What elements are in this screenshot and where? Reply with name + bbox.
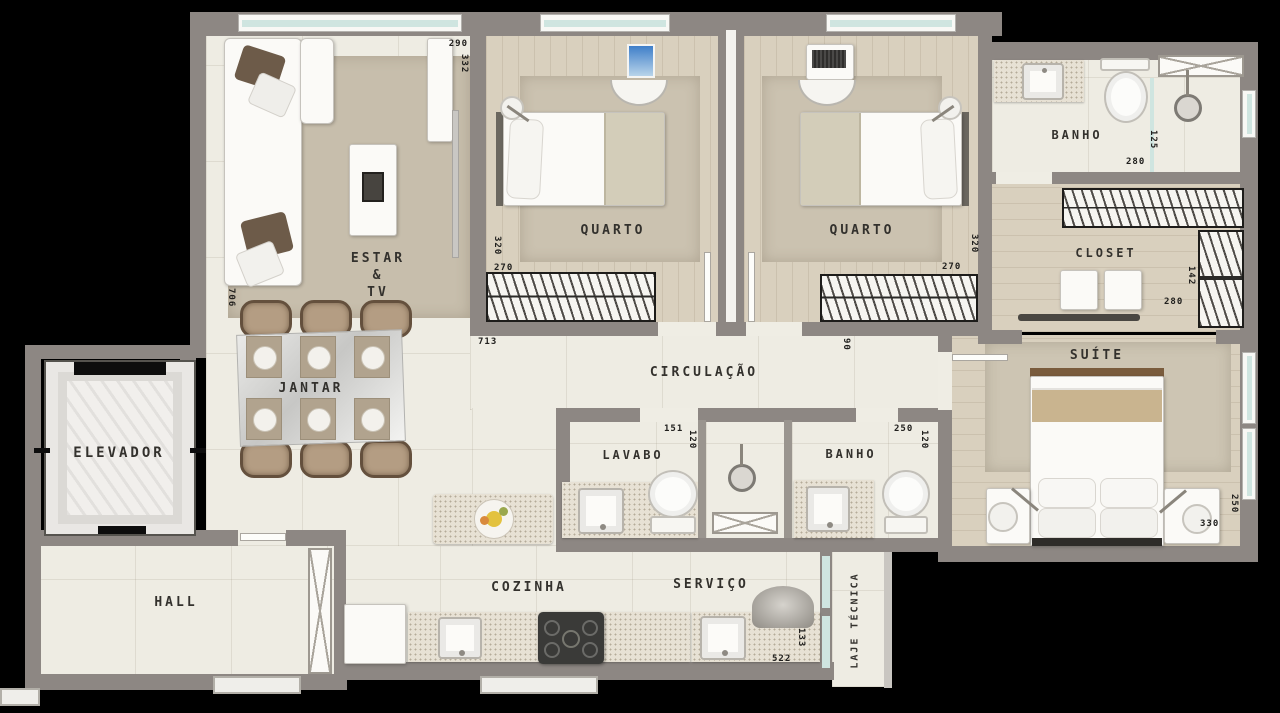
door-frame <box>480 676 598 694</box>
window-glass <box>1247 432 1252 496</box>
bed-pillow <box>1100 508 1158 538</box>
wardrobe-closet-top <box>1062 188 1244 228</box>
vent <box>822 556 830 608</box>
dim-quarto1-width: 270 <box>494 263 513 273</box>
elevator-mark <box>98 526 146 534</box>
placemat <box>354 398 390 440</box>
dim-banho-suite-width: 280 <box>1126 157 1145 167</box>
tall-cabinet <box>308 548 332 674</box>
door-leaf-quarto1 <box>704 252 711 322</box>
dim-lavabo-width: 151 <box>664 424 683 434</box>
burner <box>544 620 560 636</box>
plate <box>253 346 277 370</box>
elevator-door <box>74 362 166 375</box>
closet-stool <box>1060 270 1098 310</box>
toilet-tank <box>650 516 696 534</box>
room-label-elevador: ELEVADOR <box>59 445 179 462</box>
placemat <box>300 336 336 378</box>
faucet <box>827 522 833 528</box>
kitchen-sink <box>438 617 482 659</box>
dining-chair <box>300 440 352 478</box>
wall-glass-partition <box>784 420 792 538</box>
burner <box>582 620 598 636</box>
room-label-closet: CLOSET <box>1051 245 1161 262</box>
window-glass <box>1247 94 1252 134</box>
dim-banho-social-width: 250 <box>894 424 913 434</box>
toilet <box>882 470 930 518</box>
dim-quarto1-height: 320 <box>492 236 502 255</box>
shower-arm <box>1186 70 1189 96</box>
sofa-chaise <box>300 38 334 124</box>
faucet <box>722 650 728 656</box>
wardrobe-closet-side <box>1198 230 1244 328</box>
dim-quarto2-width: 270 <box>942 262 961 272</box>
wall <box>978 330 1022 344</box>
dim-servico-width: 522 <box>772 654 791 664</box>
wall <box>190 12 206 358</box>
wall <box>470 322 992 336</box>
toilet <box>1104 71 1148 123</box>
bed-pillow <box>1038 478 1096 508</box>
elevator-mark <box>190 448 206 453</box>
wall <box>286 530 346 546</box>
shower-head <box>728 464 756 492</box>
lamp <box>988 502 1018 532</box>
closet-stool <box>1104 270 1142 310</box>
door-opening-lavabo <box>640 408 698 422</box>
laptop <box>812 50 846 68</box>
room-label-hall: HALL <box>126 594 226 611</box>
window <box>1242 90 1256 138</box>
floor-hall <box>39 546 337 676</box>
placemat <box>354 336 390 378</box>
bed-pillow <box>1038 508 1096 538</box>
room-label-circulacao: CIRCULAÇÃO <box>634 364 774 381</box>
plate <box>307 408 331 432</box>
room-label-banho-social: BANHO <box>801 446 901 463</box>
wardrobe-quarto2 <box>820 274 978 322</box>
washer <box>752 586 814 628</box>
door-opening-banho-suite <box>996 172 1052 184</box>
dim-estar-side: 706 <box>226 288 236 307</box>
dim-closet-width: 280 <box>1164 297 1183 307</box>
bed-blanket <box>801 113 861 205</box>
tv-panel <box>452 110 459 258</box>
dim-closet-height: 142 <box>1186 266 1196 285</box>
dim-lavabo-height: 120 <box>687 430 697 449</box>
dim-porta: 90 <box>841 338 851 351</box>
wardrobe-quarto1 <box>486 272 656 322</box>
room-label-line: ESTAR <box>330 250 426 267</box>
window <box>826 14 956 32</box>
window <box>238 14 462 32</box>
room-label-line: & <box>330 267 426 284</box>
door-opening-quarto1 <box>658 322 716 336</box>
burner <box>582 642 598 658</box>
toilet <box>648 470 698 518</box>
bed-headboard <box>962 112 969 206</box>
coffee-table-object <box>362 172 384 202</box>
window <box>1242 428 1256 500</box>
dim-estar-height: 332 <box>459 54 469 73</box>
room-label-estar-tv: ESTAR & TV <box>330 250 426 301</box>
window-glass <box>830 20 952 27</box>
room-label-banho-suite: BANHO <box>1022 127 1132 144</box>
faucet <box>459 650 465 656</box>
shower-glass <box>1150 78 1154 172</box>
bed-pillow <box>1100 478 1158 508</box>
dim-banho-social-height: 120 <box>919 430 929 449</box>
door-frame <box>213 676 301 694</box>
wall-glass-partition <box>698 420 706 538</box>
floor-plan: ESTAR & TV QUARTO QUARTO BANHO CLOSET SU… <box>0 0 1280 713</box>
placemat <box>300 398 336 440</box>
wall <box>1216 330 1258 344</box>
window-glass <box>1247 356 1252 420</box>
bed-blanket <box>604 113 664 205</box>
plate <box>253 408 277 432</box>
elevator-mark <box>34 448 50 453</box>
fruit-plate <box>474 499 514 539</box>
wall <box>556 538 950 552</box>
room-label-jantar: JANTAR <box>261 380 361 397</box>
dim-estar-width: 290 <box>432 39 468 49</box>
dim-banho-suite-height: 125 <box>1148 130 1158 149</box>
fridge <box>344 604 406 664</box>
room-label-suite: SUÍTE <box>1047 347 1147 364</box>
bed-headboard-suite <box>1032 538 1162 546</box>
dim-suite-width: 330 <box>1200 519 1219 529</box>
fruit <box>499 507 508 516</box>
stove <box>538 612 604 664</box>
bed-headboard <box>496 112 503 206</box>
door-leaf-quarto2 <box>748 252 755 322</box>
bed-blanket-suite <box>1032 388 1162 422</box>
closet-bench <box>1018 314 1140 321</box>
laundry-sink <box>700 616 746 660</box>
wall <box>196 530 238 546</box>
plate <box>307 346 331 370</box>
room-label-line: TV <box>330 284 426 301</box>
plate <box>361 408 385 432</box>
wall <box>718 30 726 336</box>
sink <box>578 488 624 534</box>
sideboard <box>427 38 453 142</box>
door-opening-suite <box>938 352 952 410</box>
door-opening-banho-social <box>856 408 898 422</box>
faucet <box>1042 68 1047 73</box>
placemat <box>246 336 282 378</box>
wall <box>938 546 1258 562</box>
door-leaf-suite <box>952 354 1008 361</box>
room-label-quarto2: QUARTO <box>802 222 922 239</box>
door-leaf-entry <box>240 533 286 541</box>
wall <box>736 30 744 336</box>
wall <box>470 30 486 336</box>
room-label-quarto1: QUARTO <box>553 222 673 239</box>
window-glass <box>242 20 458 27</box>
toilet-tank <box>884 516 928 534</box>
placemat <box>246 398 282 440</box>
door-opening-quarto2 <box>746 322 802 336</box>
wall <box>25 345 41 690</box>
wall <box>25 345 196 359</box>
burner <box>544 642 560 658</box>
shower-head <box>1174 94 1202 122</box>
shower-arm <box>740 444 743 466</box>
dim-suite-height: 250 <box>1229 494 1239 513</box>
fruit <box>480 516 489 525</box>
door-frame <box>0 688 40 706</box>
burner <box>562 630 580 648</box>
wall <box>884 548 892 688</box>
wall-mirror <box>627 44 655 78</box>
sink <box>806 486 850 532</box>
dim-sala-width: 713 <box>478 337 497 347</box>
room-label-laje-tecnica: LAJE TÉCNICA <box>847 556 864 686</box>
shower-mat <box>712 512 778 534</box>
room-label-servico: SERVIÇO <box>661 576 761 593</box>
vent <box>822 616 830 668</box>
toilet-tank <box>1100 58 1150 71</box>
cabinet <box>1158 55 1244 77</box>
faucet <box>600 524 606 530</box>
dining-chair <box>360 440 412 478</box>
room-label-cozinha: COZINHA <box>479 579 579 596</box>
dim-quarto2-height: 320 <box>969 234 979 253</box>
window-glass <box>544 20 666 27</box>
sink <box>1022 63 1064 100</box>
bed-pillow <box>506 118 544 200</box>
wall-gap <box>726 30 736 336</box>
room-label-lavabo: LAVABO <box>583 447 683 464</box>
dim-servico-height: 133 <box>796 628 806 647</box>
bed-pillow <box>920 118 958 200</box>
window <box>540 14 670 32</box>
window <box>1242 352 1256 424</box>
plate <box>361 346 385 370</box>
